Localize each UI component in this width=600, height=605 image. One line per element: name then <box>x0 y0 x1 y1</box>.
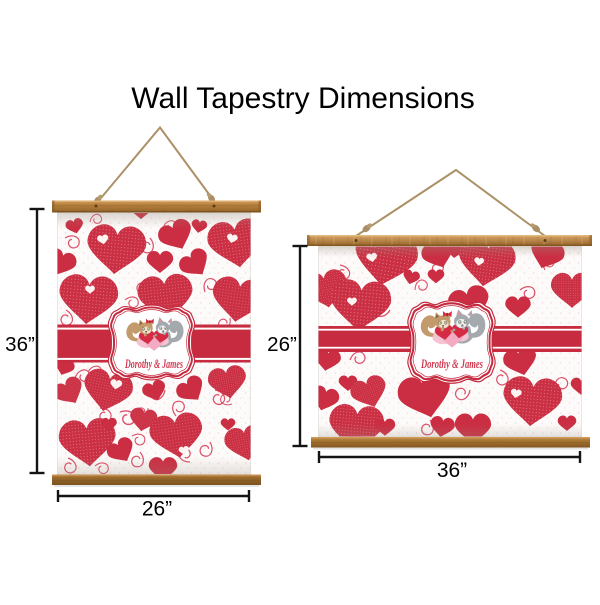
svg-text:26”: 26” <box>267 333 297 356</box>
svg-text:36”: 36” <box>5 333 35 356</box>
svg-text:Dorothy & James: Dorothy & James <box>124 357 183 371</box>
svg-text:Wall Tapestry Dimensions: Wall Tapestry Dimensions <box>131 82 474 115</box>
svg-text:Dorothy & James: Dorothy & James <box>420 356 483 371</box>
svg-text:26”: 26” <box>142 498 172 521</box>
svg-text:36”: 36” <box>437 459 467 482</box>
